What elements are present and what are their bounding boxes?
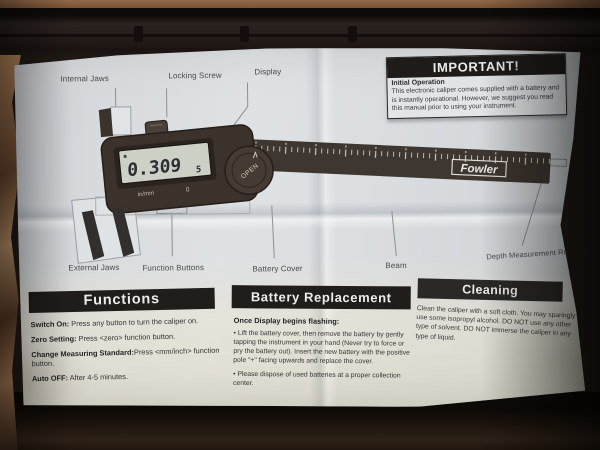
case-ridge	[0, 34, 600, 37]
label-external-jaws: External Jaws	[68, 263, 119, 273]
important-text: This electronic caliper comes supplied w…	[392, 84, 563, 114]
battery-bullet: • Please dispose of used batteries at a …	[233, 371, 415, 391]
label-display: Display	[254, 67, 281, 76]
case-clip	[134, 26, 143, 42]
cleaning-header: Cleaning	[417, 278, 562, 302]
photo-scene: Fowler OPEN 0.309 5	[0, 0, 600, 450]
label-function-buttons: Function Buttons	[142, 263, 204, 273]
battery-bullet: • Lift the battery cover, then remove th…	[233, 330, 415, 368]
function-item: Zero Setting: Press <zero> function butt…	[31, 330, 229, 344]
beam-shape: Fowler	[238, 139, 567, 185]
cleaning-text: Clean the caliper with a soft cloth. You…	[415, 304, 577, 349]
depth-rod-shape	[548, 159, 566, 167]
important-notice-box: IMPORTANT! Initial Operation This electr…	[386, 53, 567, 119]
label-battery-cover: Battery Cover	[252, 264, 302, 274]
lcd-half-digit: 5	[196, 165, 201, 176]
brand-text: Fowler	[460, 163, 498, 177]
function-item: Auto OFF: After 4-5 minutes.	[32, 369, 230, 383]
battery-intro: Once Display begins flashing:	[234, 316, 416, 327]
function-item-text: Press any button to turn the caliper on.	[69, 316, 198, 328]
important-body: Initial Operation This electronic calipe…	[387, 74, 566, 118]
function-item-lead: Zero Setting:	[31, 334, 77, 344]
manual-page: Fowler OPEN 0.309 5	[14, 45, 590, 411]
functions-header: Functions	[29, 288, 215, 313]
label-locking-screw: Locking Screw	[168, 71, 221, 81]
function-item-text: After 4-5 minutes.	[68, 371, 128, 381]
function-item-lead: Switch On:	[30, 319, 69, 329]
internal-jaw-shape	[99, 108, 113, 137]
function-item-lead: Auto OFF:	[32, 373, 68, 383]
case-clip	[240, 26, 249, 42]
label-internal-jaws: Internal Jaws	[60, 74, 109, 84]
function-item: Switch On: Press any button to turn the …	[30, 315, 228, 329]
battery-text: Once Display begins flashing: • Lift the…	[233, 316, 416, 396]
label-beam: Beam	[385, 261, 406, 270]
case-clip	[348, 26, 357, 42]
battery-header: Battery Replacement	[232, 285, 411, 309]
function-item-text: Press <zero> function button.	[76, 331, 175, 342]
functions-text: Switch On: Press any button to turn the …	[30, 315, 230, 388]
function-item: Change Measuring Standard:Press <mm/inch…	[31, 345, 229, 368]
function-item-lead: Change Measuring Standard:	[31, 347, 134, 359]
